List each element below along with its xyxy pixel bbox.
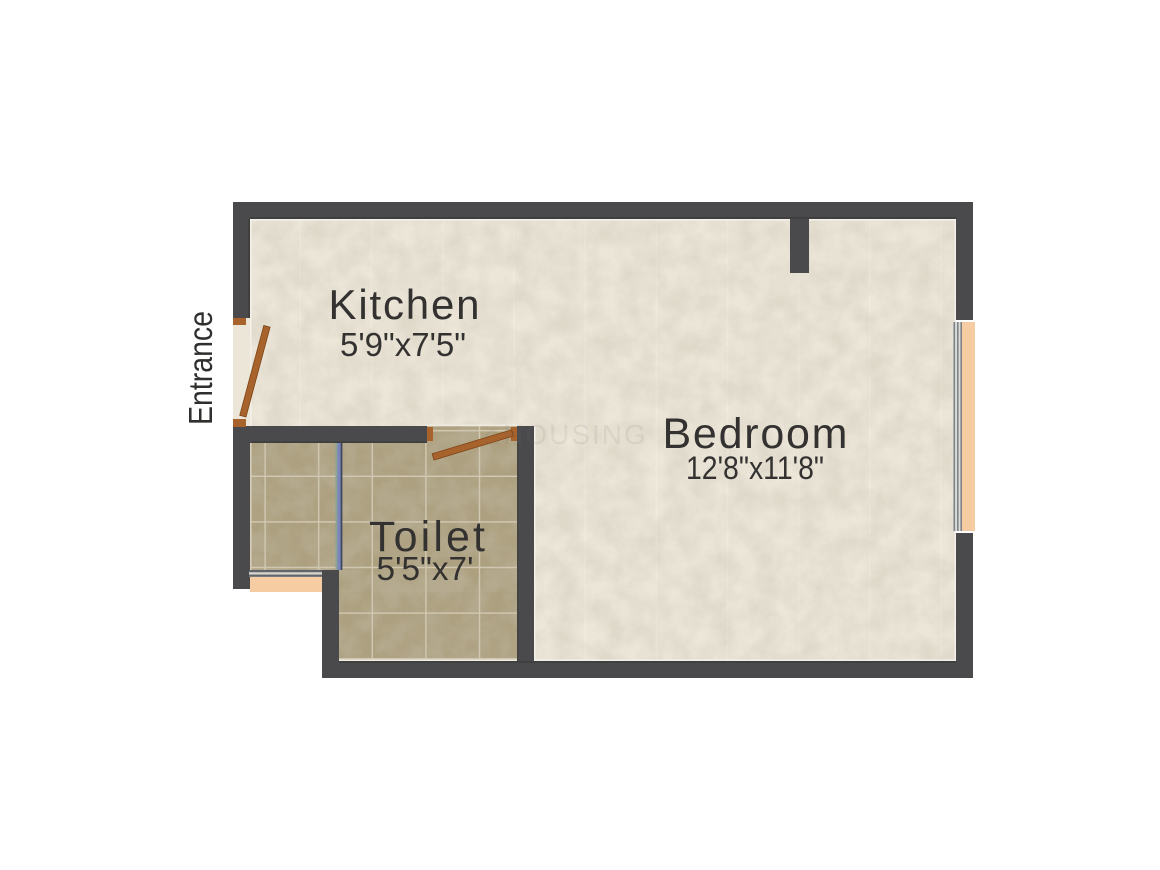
svg-text:⌂HOUSING: ⌂HOUSING (484, 419, 648, 450)
svg-text:12'8"x11'8": 12'8"x11'8" (686, 450, 824, 486)
svg-text:5'5"x7': 5'5"x7' (377, 550, 474, 587)
svg-text:Entrance: Entrance (182, 311, 219, 425)
svg-text:5'9"x7'5": 5'9"x7'5" (340, 326, 466, 363)
